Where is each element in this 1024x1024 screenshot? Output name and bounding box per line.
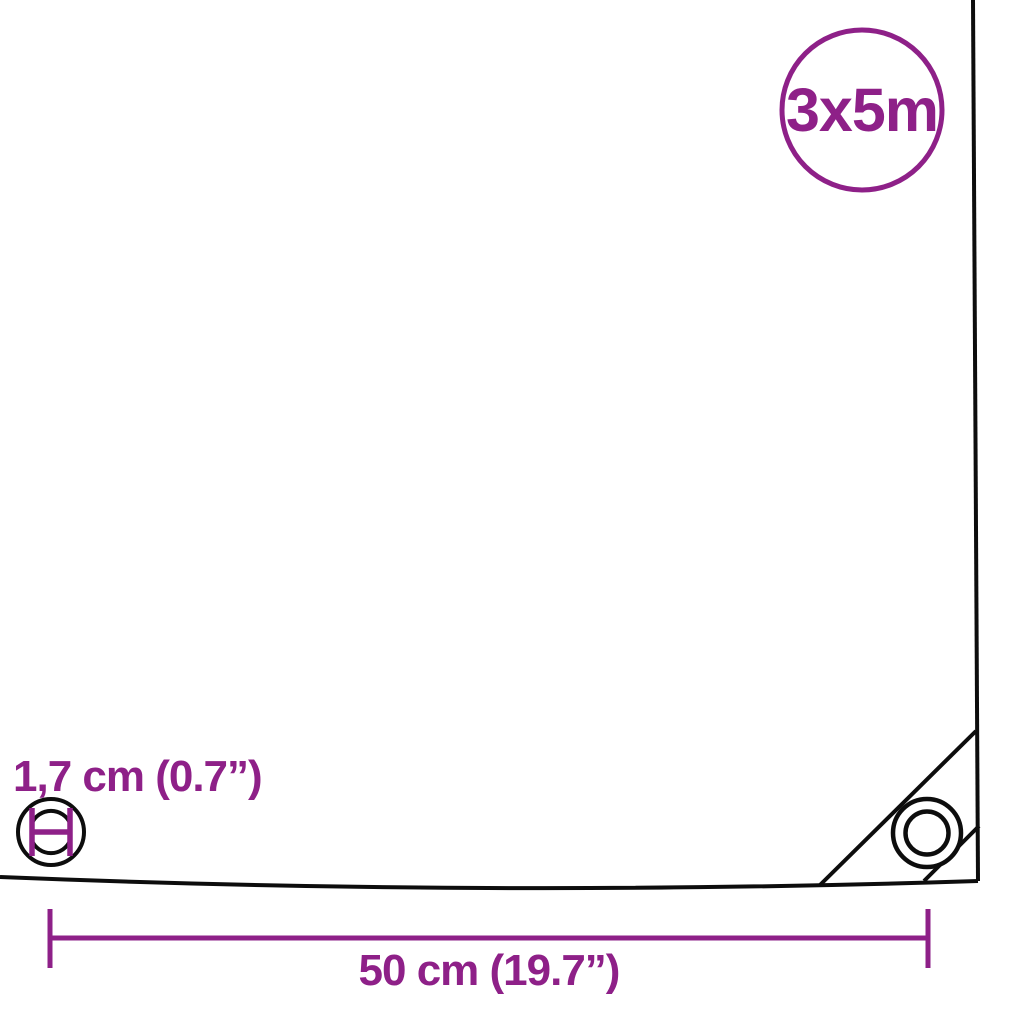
corner-grommet-icon [893, 799, 961, 867]
eyelet-detail-icon [18, 799, 84, 865]
eyelet-diameter-label: 1,7 cm (0.7”) [13, 752, 262, 801]
size-badge: 3x5m [782, 30, 942, 190]
tarp-bottom-edge [0, 877, 978, 888]
tarp-dimension-drawing: 1,7 cm (0.7”) 50 cm (19.7”) 3x5m [0, 0, 1024, 1024]
spacing-dimension-label: 50 cm (19.7”) [359, 946, 620, 995]
size-badge-label: 3x5m [786, 76, 938, 144]
product-dimension-diagram: 1,7 cm (0.7”) 50 cm (19.7”) 3x5m [0, 0, 1024, 1024]
tarp-right-edge [973, 0, 978, 881]
grommet-inner-ring [906, 812, 949, 855]
